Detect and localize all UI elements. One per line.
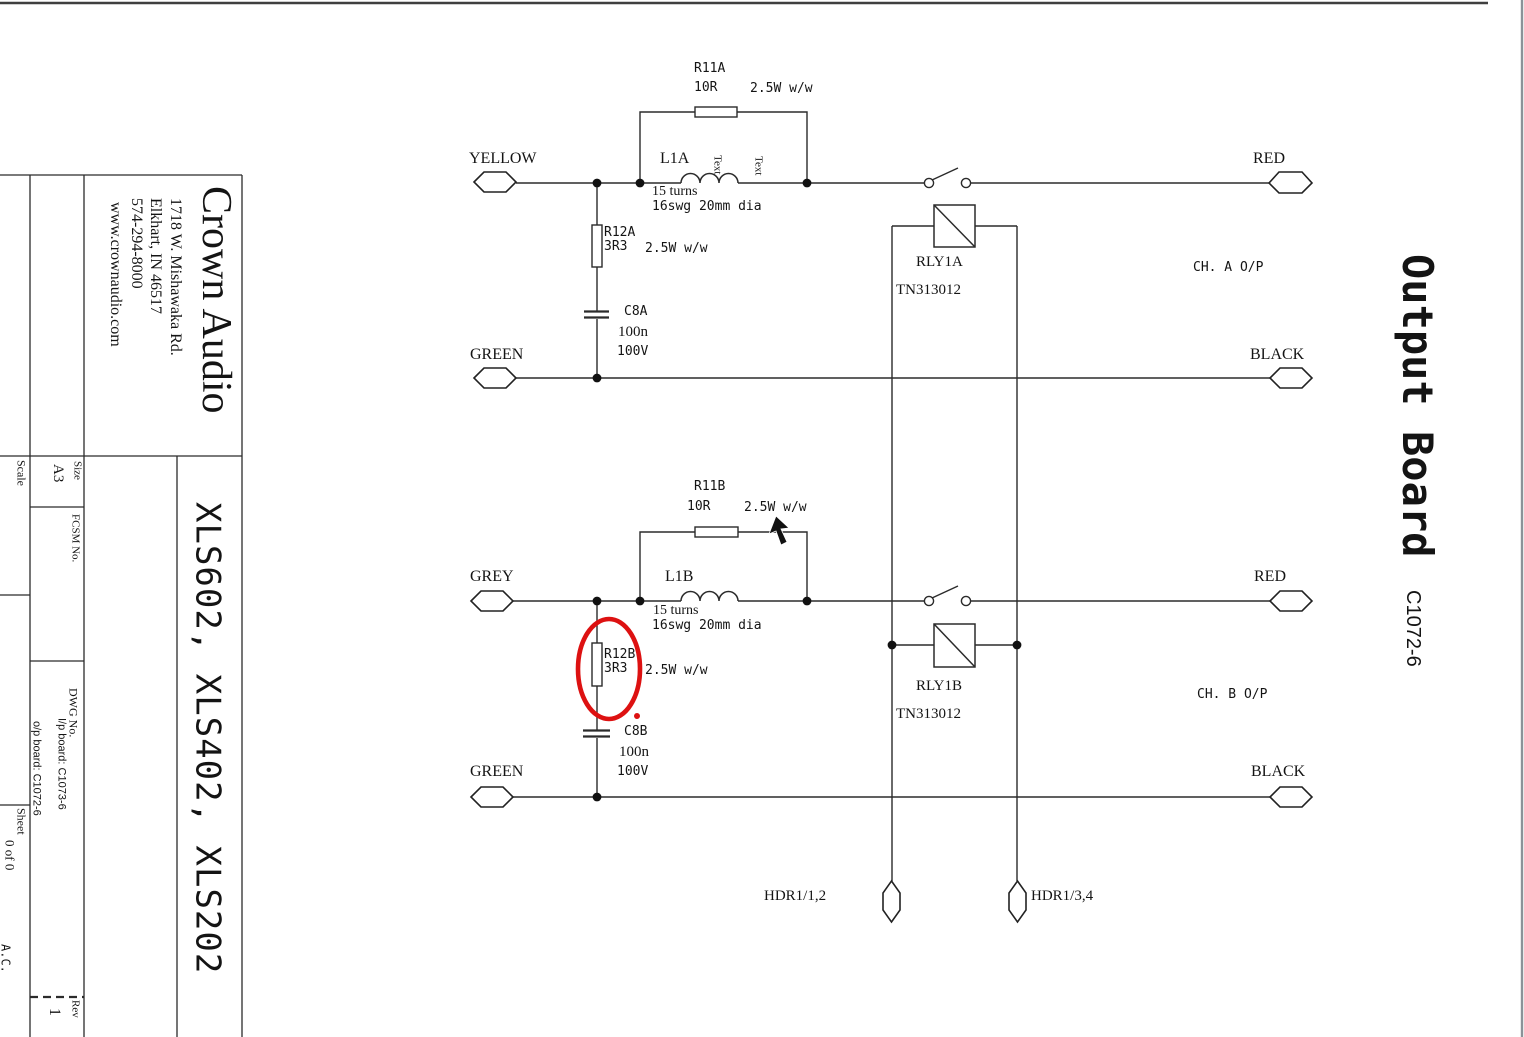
label-input-grey: GREY [470, 569, 514, 586]
resistor-r12b[interactable] [592, 643, 602, 686]
resistor-r11b[interactable] [695, 527, 738, 537]
rev-value: 1 [45, 1008, 62, 1016]
label-output-red-a: RED [1253, 151, 1285, 168]
label-l1a-turns: 15 turns [652, 185, 698, 200]
label-r11b-value: 10R [687, 500, 710, 514]
company-address-line2: Elkhart, IN 46517 [146, 198, 163, 314]
label-rly1b-part: TN313012 [896, 707, 961, 723]
connector-yellow[interactable] [474, 172, 516, 192]
label-r12b-value: 3R3 [604, 662, 627, 676]
label-input-yellow: YELLOW [469, 151, 537, 168]
label-rly1a-ref: RLY1A [916, 255, 963, 271]
dwg-ip-board: I/p board: C1073-6 [55, 718, 67, 810]
red-dot-annotation [634, 713, 640, 719]
schematic-sheet: Crown Audio 1718 W. Mishawaka Rd. Elkhar… [0, 0, 1524, 1037]
connector-red-a[interactable] [1269, 172, 1312, 193]
label-c8b-voltage: 100V [617, 765, 648, 779]
label-r11a-value: 10R [694, 81, 717, 95]
model-list: XLS602, XLS402, XLS202 [189, 502, 225, 974]
resistor-r12a[interactable] [592, 225, 602, 267]
label-l1a-wire-spec: 16swg 20mm dia [652, 200, 762, 214]
company-phone: 574-294-8000 [127, 198, 144, 289]
label-r12b-ref: R12B [604, 648, 635, 662]
dwg-label: DWG No. [67, 688, 80, 737]
label-input-green-a: GREEN [470, 347, 523, 364]
mouse-cursor [769, 516, 789, 545]
label-l1a-ref: L1A [660, 151, 689, 168]
label-r11b-rating: 2.5W w/w [744, 501, 807, 515]
switch-contact-b[interactable] [924, 586, 970, 606]
capacitor-c8b[interactable] [583, 731, 610, 737]
label-l1b-wire-spec: 16swg 20mm dia [652, 619, 762, 633]
drawing-title: Output Board [1395, 254, 1439, 557]
label-l1a-text1: Text [711, 155, 723, 174]
label-c8b-value: 100n [619, 745, 649, 761]
label-c8a-value: 100n [618, 325, 648, 341]
label-c8a-voltage: 100V [617, 345, 648, 359]
label-input-green-b: GREEN [470, 764, 523, 781]
label-channel-a-output: CH. A O/P [1193, 261, 1263, 275]
label-c8b-ref: C8B [624, 725, 647, 739]
connector-hdr1-34-pin[interactable] [1009, 881, 1026, 922]
fcsm-label: FCSM No. [69, 514, 81, 562]
resistor-r11a[interactable] [695, 107, 737, 117]
company-name: Crown Audio [194, 186, 238, 414]
label-hdr1-12: HDR1/1,2 [764, 889, 826, 905]
label-hdr1-34: HDR1/3,4 [1031, 889, 1093, 905]
label-l1b-ref: L1B [665, 569, 693, 586]
label-output-red-b: RED [1254, 569, 1286, 586]
label-channel-b-output: CH. B O/P [1197, 688, 1267, 702]
label-r12b-rating: 2.5W w/w [645, 664, 708, 678]
label-r12a-ref: R12A [604, 226, 635, 240]
connector-black-b[interactable] [1270, 787, 1312, 807]
inductor-l1a[interactable] [681, 174, 738, 183]
company-website: www.crownaudio.com [106, 202, 123, 347]
dwg-op-board: o/p board: C1072-6 [30, 721, 42, 816]
sheet-label: Sheet [15, 808, 28, 835]
drawing-number: C1072-6 [1402, 590, 1423, 667]
label-output-black-a: BLACK [1250, 347, 1304, 364]
connector-green-a[interactable] [474, 368, 516, 388]
label-c8a-ref: C8A [624, 305, 647, 319]
label-r11a-rating: 2.5W w/w [750, 82, 813, 96]
size-label: Size [71, 461, 83, 480]
switch-contact-a[interactable] [924, 168, 970, 188]
connector-red-b[interactable] [1270, 591, 1312, 611]
company-address-line1: 1718 W. Mishawaka Rd. [166, 198, 183, 356]
label-r12a-rating: 2.5W w/w [645, 242, 708, 256]
connector-hdr1-12-pin[interactable] [883, 881, 900, 922]
connector-green-b[interactable] [471, 787, 513, 807]
inductor-l1b[interactable] [681, 592, 738, 602]
sheet-value: 0 of 0 [3, 840, 17, 870]
label-l1b-turns: 15 turns [653, 604, 699, 619]
label-l1a-text2: Text [752, 156, 764, 175]
drafter-initials: A.C. [0, 944, 12, 973]
relay-rly1b[interactable] [934, 624, 975, 667]
label-r12a-value: 3R3 [604, 240, 627, 254]
size-value: A3 [49, 464, 65, 482]
scale-label: Scale [15, 460, 28, 486]
label-r11b-ref: R11B [694, 480, 725, 494]
label-rly1b-ref: RLY1B [916, 679, 962, 695]
connector-black-a[interactable] [1270, 368, 1312, 388]
label-r11a-ref: R11A [694, 62, 725, 76]
rev-label: Rev [69, 1000, 81, 1018]
relay-rly1a[interactable] [934, 205, 975, 247]
connector-grey[interactable] [471, 591, 513, 611]
label-output-black-b: BLACK [1251, 764, 1305, 781]
capacitor-c8a[interactable] [584, 312, 609, 318]
label-rly1a-part: TN313012 [896, 283, 961, 299]
